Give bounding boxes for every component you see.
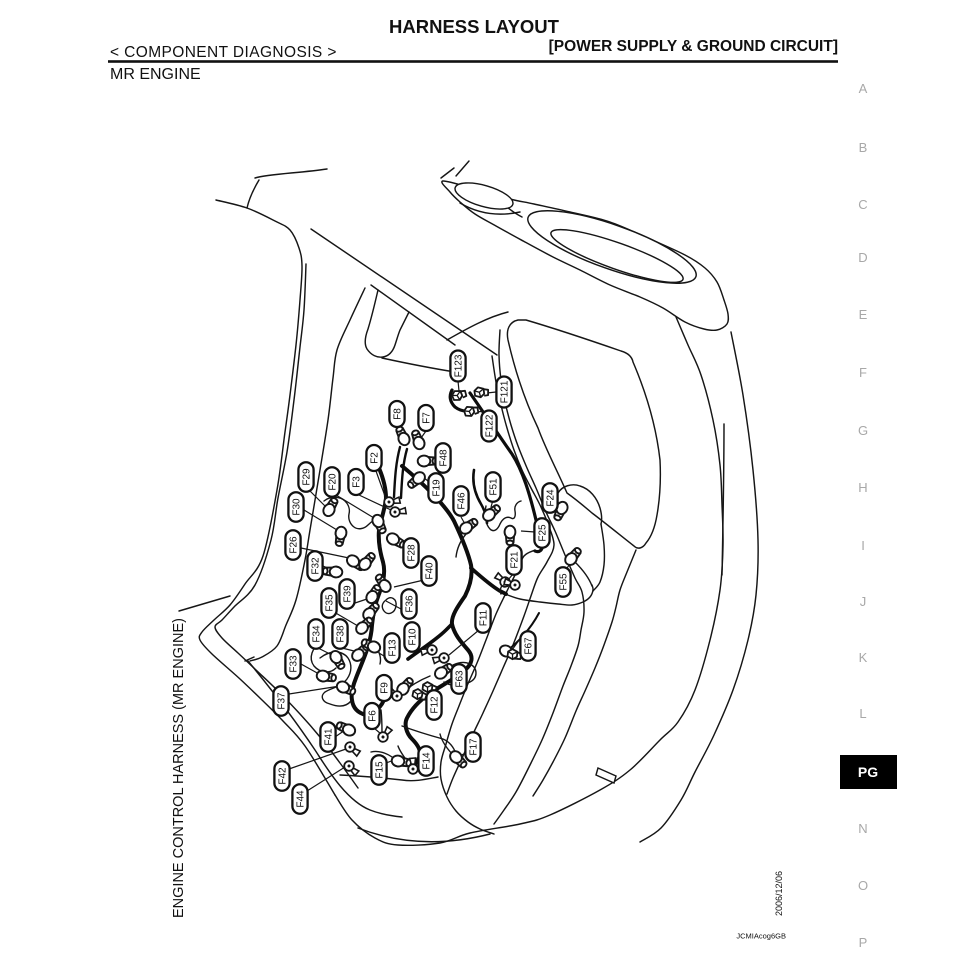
svg-text:F40: F40 <box>425 562 436 580</box>
svg-text:F26: F26 <box>289 536 300 554</box>
svg-text:H: H <box>858 480 867 495</box>
svg-text:O: O <box>858 878 868 893</box>
svg-text:F3: F3 <box>352 476 363 488</box>
svg-text:F33: F33 <box>289 655 300 673</box>
svg-text:F39: F39 <box>343 585 354 603</box>
svg-text:F14: F14 <box>422 752 433 770</box>
svg-text:L: L <box>859 706 866 721</box>
svg-text:MR ENGINE: MR ENGINE <box>110 66 201 83</box>
svg-text:F15: F15 <box>375 761 386 779</box>
svg-text:F37: F37 <box>277 692 288 710</box>
svg-text:A: A <box>859 81 868 96</box>
svg-text:F25: F25 <box>538 524 549 542</box>
svg-text:F17: F17 <box>469 738 480 756</box>
svg-text:B: B <box>859 140 868 155</box>
svg-text:F36: F36 <box>405 595 416 613</box>
svg-text:F67: F67 <box>524 637 535 655</box>
svg-text:F38: F38 <box>336 625 347 643</box>
svg-text:F13: F13 <box>388 639 399 657</box>
svg-text:J: J <box>860 594 867 609</box>
svg-text:F28: F28 <box>407 544 418 562</box>
svg-text:< COMPONENT DIAGNOSIS >: < COMPONENT DIAGNOSIS > <box>110 44 337 61</box>
svg-text:HARNESS LAYOUT: HARNESS LAYOUT <box>389 16 560 37</box>
svg-text:F20: F20 <box>328 473 339 491</box>
svg-text:PG: PG <box>858 764 878 780</box>
svg-text:F29: F29 <box>302 468 313 486</box>
svg-text:D: D <box>858 250 867 265</box>
svg-text:P: P <box>859 935 868 950</box>
svg-text:C: C <box>858 197 867 212</box>
svg-text:F19: F19 <box>432 479 443 497</box>
svg-text:F11: F11 <box>479 609 490 626</box>
svg-text:F123: F123 <box>454 354 465 377</box>
svg-text:F32: F32 <box>311 557 322 575</box>
svg-text:2006/12/06: 2006/12/06 <box>774 871 784 916</box>
svg-text:G: G <box>858 423 868 438</box>
svg-text:F51: F51 <box>489 478 500 496</box>
svg-text:K: K <box>859 650 868 665</box>
svg-text:E: E <box>859 307 868 322</box>
svg-text:F2: F2 <box>370 452 381 464</box>
svg-text:F24: F24 <box>546 489 557 507</box>
svg-text:F21: F21 <box>510 551 521 569</box>
svg-text:F: F <box>859 365 867 380</box>
svg-text:ENGINE CONTROL HARNESS (MR ENG: ENGINE CONTROL HARNESS (MR ENGINE) <box>171 618 187 918</box>
svg-text:I: I <box>861 538 865 553</box>
svg-text:F55: F55 <box>559 573 570 591</box>
svg-text:F42: F42 <box>278 767 289 785</box>
svg-text:F121: F121 <box>500 380 511 403</box>
svg-text:F46: F46 <box>457 492 468 510</box>
svg-text:F122: F122 <box>485 414 496 437</box>
svg-text:F44: F44 <box>296 790 307 808</box>
svg-text:F9: F9 <box>380 682 391 694</box>
svg-text:F8: F8 <box>393 408 404 420</box>
svg-text:F48: F48 <box>439 449 450 467</box>
svg-text:F34: F34 <box>312 625 323 643</box>
svg-text:F12: F12 <box>430 696 441 714</box>
svg-text:JCMIAcog6GB: JCMIAcog6GB <box>736 932 786 941</box>
svg-text:N: N <box>858 821 867 836</box>
svg-text:F10: F10 <box>408 628 419 646</box>
svg-text:F41: F41 <box>324 728 335 746</box>
svg-text:F63: F63 <box>455 670 466 688</box>
svg-text:F6: F6 <box>368 710 379 722</box>
svg-text:F7: F7 <box>422 412 433 424</box>
svg-text:[POWER SUPPLY & GROUND CIRCUIT: [POWER SUPPLY & GROUND CIRCUIT] <box>549 38 838 55</box>
svg-text:F30: F30 <box>292 498 303 516</box>
svg-text:F35: F35 <box>325 594 336 612</box>
